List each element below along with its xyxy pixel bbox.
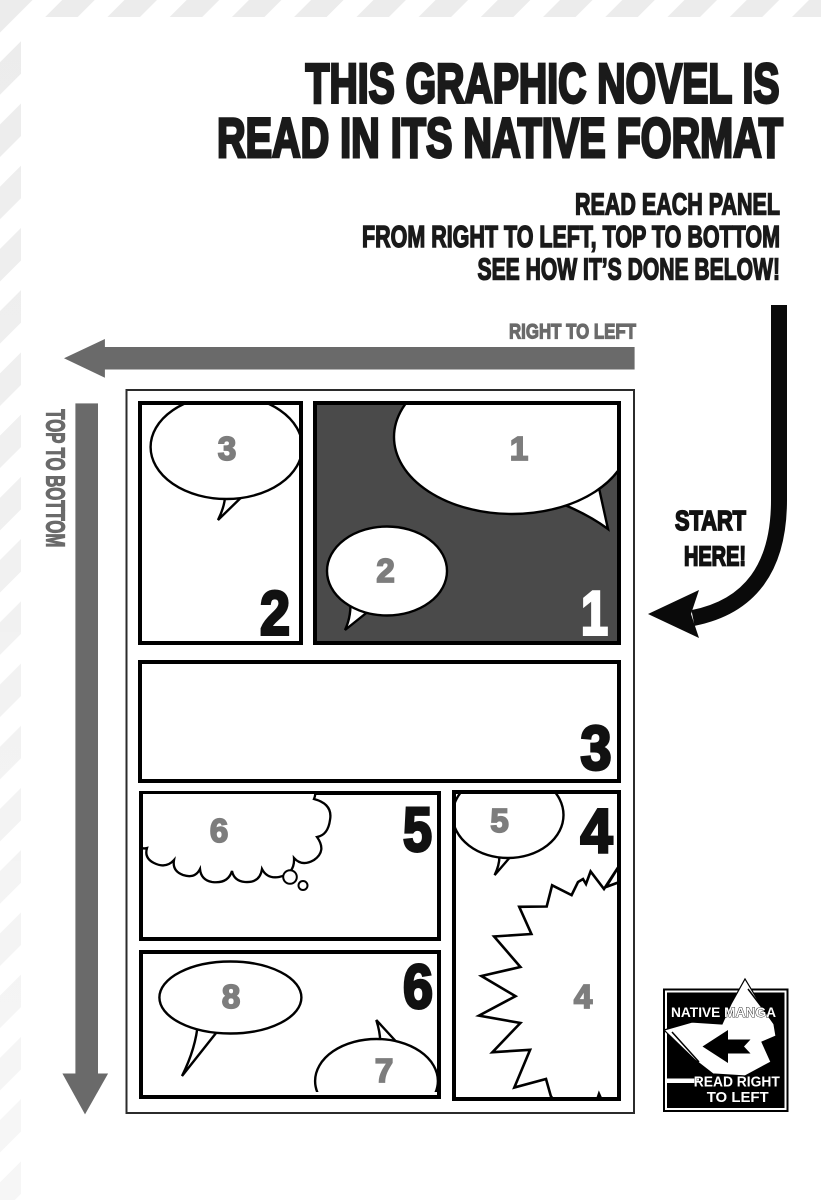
svg-text:TO LEFT: TO LEFT bbox=[707, 1089, 769, 1106]
svg-text:SEE HOW IT’S DONE BELOW!: SEE HOW IT’S DONE BELOW! bbox=[478, 252, 781, 287]
svg-text:2: 2 bbox=[376, 552, 394, 589]
svg-text:HERE!: HERE! bbox=[684, 541, 746, 572]
svg-text:4: 4 bbox=[581, 797, 613, 866]
svg-text:6: 6 bbox=[403, 953, 433, 1022]
svg-text:READ EACH PANEL: READ EACH PANEL bbox=[575, 187, 780, 222]
svg-text:START: START bbox=[675, 505, 746, 536]
svg-text:FROM RIGHT TO LEFT, TOP TO BOT: FROM RIGHT TO LEFT, TOP TO BOTTOM bbox=[362, 219, 780, 254]
svg-text:TOP TO BOTTOM: TOP TO BOTTOM bbox=[41, 409, 71, 547]
svg-text:6: 6 bbox=[210, 812, 228, 849]
svg-text:RIGHT TO LEFT: RIGHT TO LEFT bbox=[509, 320, 636, 344]
svg-text:NATIVE MANGA: NATIVE MANGA bbox=[671, 1004, 776, 1020]
svg-text:8: 8 bbox=[222, 978, 240, 1015]
svg-text:2: 2 bbox=[260, 579, 290, 648]
svg-text:3: 3 bbox=[581, 715, 612, 784]
svg-text:7: 7 bbox=[375, 1052, 393, 1089]
svg-text:5: 5 bbox=[490, 802, 508, 839]
svg-text:THIS GRAPHIC NOVEL IS: THIS GRAPHIC NOVEL IS bbox=[306, 52, 780, 114]
svg-text:3: 3 bbox=[218, 430, 236, 467]
svg-text:1: 1 bbox=[581, 579, 608, 648]
svg-text:READ RIGHT: READ RIGHT bbox=[694, 1074, 780, 1091]
svg-text:1: 1 bbox=[510, 430, 528, 467]
svg-text:5: 5 bbox=[403, 796, 432, 865]
svg-text:4: 4 bbox=[574, 978, 593, 1015]
svg-text:READ IN ITS NATIVE FORMAT: READ IN ITS NATIVE FORMAT bbox=[217, 107, 783, 169]
